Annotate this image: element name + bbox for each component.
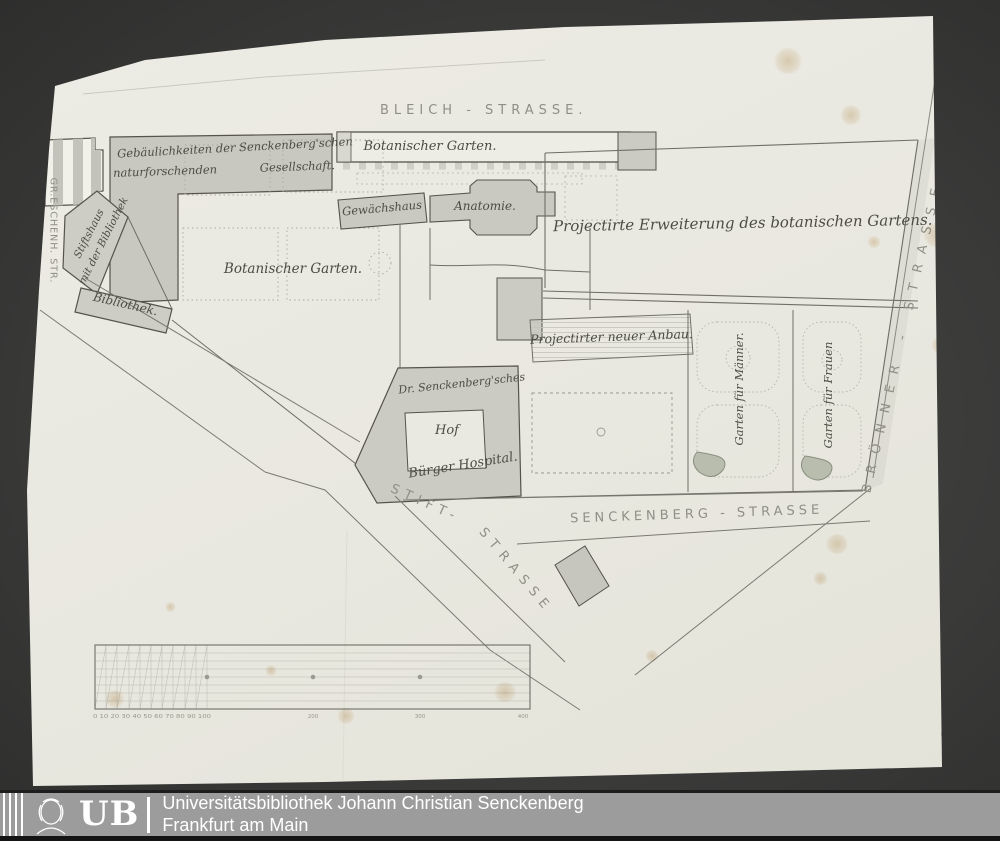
garden-bed-row bbox=[565, 176, 617, 220]
scale-tick-200: 200 bbox=[308, 714, 319, 720]
ub-logo: UB bbox=[0, 793, 162, 836]
logo-pinstripes-icon bbox=[3, 793, 27, 836]
scale-tick-400: 400 bbox=[518, 714, 529, 720]
paper-crease bbox=[343, 530, 347, 780]
handwritten-page-number: 10 bbox=[937, 718, 958, 740]
ub-logo-text: UB bbox=[79, 797, 139, 831]
label-garten-frauen: Garten für Frauen bbox=[821, 330, 835, 460]
plan-linework: 0 10 20 30 40 50 60 70 80 90 100 200 300… bbox=[25, 10, 945, 790]
label-botanischer-garten-strip: Botanischer Garten. bbox=[350, 139, 510, 154]
library-name-block: Universitätsbibliothek Johann Christian … bbox=[162, 793, 583, 835]
label-anatomie: Anatomie. bbox=[445, 199, 525, 213]
street-label-bleichstrasse: BLEICH - STRASSE. bbox=[380, 103, 587, 118]
pond bbox=[693, 452, 725, 477]
scanned-map-sheet: 0 10 20 30 40 50 60 70 80 90 100 200 300… bbox=[25, 10, 945, 790]
label-gesellschaft: Gesellschaft. bbox=[260, 158, 336, 175]
courtyard-dashed bbox=[532, 393, 672, 473]
library-name: Universitätsbibliothek Johann Christian … bbox=[162, 793, 583, 814]
library-city: Frankfurt am Main bbox=[162, 815, 583, 836]
scale-minor-ticks: 0 10 20 30 40 50 60 70 80 90 100 bbox=[93, 714, 212, 720]
street-label-gr-eschenheimer: GR.ESCHENH. STR. bbox=[48, 166, 59, 296]
scale-tick-300: 300 bbox=[415, 714, 426, 720]
plate-mark-line bbox=[83, 60, 545, 94]
logo-divider bbox=[147, 797, 150, 833]
label-garten-maenner: Garten für Männer. bbox=[732, 324, 746, 454]
library-footer-bar: UB Universitätsbibliothek Johann Christi… bbox=[0, 790, 1000, 841]
detached-building bbox=[555, 546, 609, 606]
scan-viewer: 0 10 20 30 40 50 60 70 80 90 100 200 300… bbox=[0, 0, 1000, 841]
senckenberg-portrait-icon bbox=[29, 795, 73, 835]
label-botanischer-garten-main: Botanischer Garten. bbox=[213, 261, 373, 277]
label-hof: Hof bbox=[417, 423, 477, 438]
scale-bar: 0 10 20 30 40 50 60 70 80 90 100 200 300… bbox=[93, 645, 530, 720]
garden-bed-row bbox=[357, 173, 582, 184]
hospital-gardens bbox=[688, 310, 861, 492]
